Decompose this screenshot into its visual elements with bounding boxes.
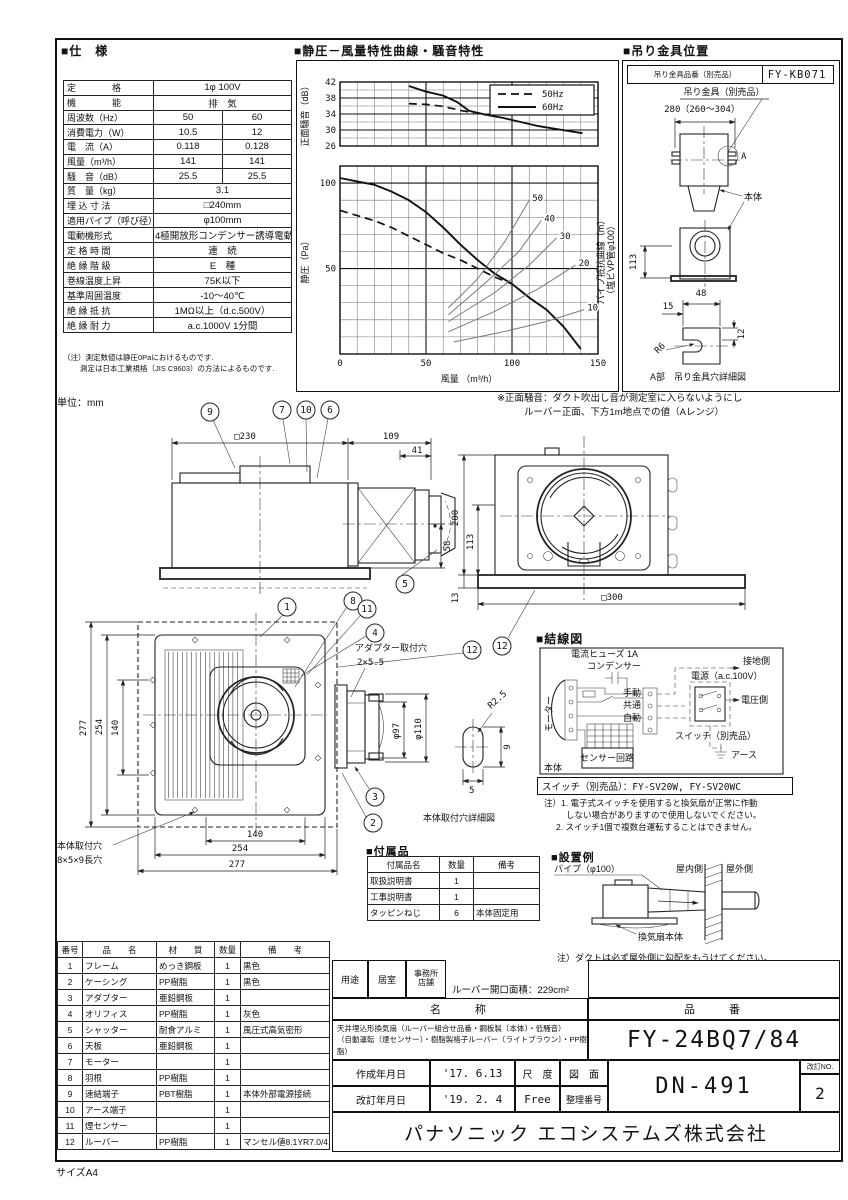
ground-side-label: 接地側 bbox=[743, 655, 770, 666]
balloon-5: 5 bbox=[396, 575, 414, 593]
svg-text:38: 38 bbox=[325, 94, 336, 104]
dim-41-group: 41 bbox=[400, 446, 431, 460]
dim-110: φ110 bbox=[414, 718, 424, 740]
spec-row: 機 能排 気 bbox=[64, 95, 292, 110]
usage-living: 居室 bbox=[368, 960, 406, 998]
model-header: 品 番 bbox=[588, 998, 840, 1020]
capacitor-label: コンデンサー bbox=[587, 660, 641, 671]
adapter-hole-label: アダプター取付穴 bbox=[355, 642, 427, 653]
balloon-11: 11 bbox=[358, 600, 376, 618]
svg-text:8: 8 bbox=[350, 596, 356, 607]
louver-assembly bbox=[138, 613, 337, 837]
table-row: 7モーター1 bbox=[58, 1054, 330, 1070]
table-row: 工事説明書1 bbox=[368, 889, 540, 905]
balloon-9: 9 bbox=[201, 403, 219, 421]
dim-113: 113 bbox=[466, 534, 476, 550]
adapter-hole-size: 2×5.5 bbox=[357, 658, 384, 668]
dim-5: 5 bbox=[469, 786, 474, 796]
spec-row: 定 格 時 間連 続 bbox=[64, 243, 292, 258]
spec-table-body: 定 格1φ 100V機 能排 気周波数（Hz）5060消費電力（W）10.512… bbox=[64, 81, 292, 333]
detail-a-label: A bbox=[741, 152, 747, 162]
bracket-caption: A部 吊り金具穴詳細図 bbox=[650, 371, 746, 382]
dim-r25: R2.5 bbox=[486, 689, 509, 711]
table-row: 10アース端子1 bbox=[58, 1102, 330, 1118]
pressure-y-axis-label: 静圧（Pa） bbox=[299, 236, 310, 283]
balloon-1: 1 bbox=[278, 598, 296, 616]
svg-text:50: 50 bbox=[421, 359, 432, 369]
svg-text:9: 9 bbox=[207, 407, 213, 418]
spec-row: 絶 縁 抵 抗1MΩ以上（d.c.500V） bbox=[64, 303, 292, 318]
spec-row: 埋 込 寸 法□240mm bbox=[64, 198, 292, 213]
created-label: 作成年月日 bbox=[332, 1060, 430, 1086]
side-view-drawing: 9 7 10 6 □230 109 41 bbox=[85, 398, 455, 613]
dim-254-bottom: 254 bbox=[232, 844, 248, 854]
pipe-curve-axis-label-1: パイプ抵抗曲線（m） bbox=[595, 216, 606, 305]
table-row: 2ケーシングPP樹脂1黒色 bbox=[58, 974, 330, 990]
spec-note-1: （注）測定数値は静圧0Paにおけるものです. bbox=[63, 352, 213, 363]
switch-label: スイッチ（別売品） bbox=[675, 730, 756, 741]
fuse-label: 電流ヒューズ 1A bbox=[571, 648, 638, 659]
spec-sheet-page: { "meta": {"sheet_size": "サイズA4", "unit"… bbox=[0, 0, 848, 1200]
product-name-line-1: 天井埋込形換気扇（ルーバー組合せ品番・鋼板製〔本体〕・低騒音） bbox=[337, 1023, 566, 1034]
pq-noise-chart: 正面騒音（dB） 静圧（Pa） 風量 （m³/h） パイプ抵抗曲線（m） （塩ビ… bbox=[296, 60, 617, 390]
svg-text:10: 10 bbox=[300, 405, 312, 416]
table-row: 12ルーバーPP樹脂1マンセル値8.1YR7.0/4.0 bbox=[58, 1134, 330, 1150]
spec-row: 絶 縁 階 級E 種 bbox=[64, 258, 292, 273]
svg-text:150: 150 bbox=[590, 359, 606, 369]
spec-note-2: 測定は日本工業規格（JIS C9603）の方法によるものです. bbox=[80, 363, 274, 374]
svg-text:34: 34 bbox=[325, 110, 336, 120]
bracket-label: 吊り金具（別売品） bbox=[683, 86, 764, 97]
accessories-table: 付属品名数量備考取扱説明書1工事説明書1タッピンねじ6本体固定用 bbox=[367, 856, 540, 921]
dim-12: 12 bbox=[737, 329, 747, 340]
dim-41: 41 bbox=[412, 446, 423, 456]
table-row: 3アダプター亜鉛鋼板1 bbox=[58, 990, 330, 1006]
svg-text:60Hz: 60Hz bbox=[542, 103, 564, 113]
noise-note-1: ※正面騒音：ダクト吹出し音が測定室に入らないようにし bbox=[497, 390, 742, 404]
product-name-cell: 天井埋込形換気扇（ルーバー組合せ品番・鋼板製〔本体〕・低騒音） （自動運転〔煙セ… bbox=[332, 1020, 588, 1060]
balloon-4: 4 bbox=[366, 624, 384, 642]
created-date: '17. 6.13 bbox=[430, 1060, 515, 1086]
table-row: 5シャッター耐食アルミ1風圧式高気密形 bbox=[58, 1022, 330, 1038]
manual-label: 手動 bbox=[623, 687, 641, 698]
left-dims: 277 254 140 bbox=[79, 622, 155, 827]
dim-r6: R6 bbox=[653, 341, 668, 356]
sensor-label: センサー回路 bbox=[580, 752, 634, 763]
grille-lines bbox=[169, 652, 238, 798]
x-axis-label: 風量 （m³/h） bbox=[441, 374, 498, 384]
wiring-note-2: しない場合がありますので使用しないでください。 bbox=[566, 809, 761, 821]
mount-hole-detail: R2.5 9 5 本体取付穴詳細図 bbox=[423, 689, 513, 823]
dim-97: φ97 bbox=[392, 723, 402, 739]
switch-contacts bbox=[699, 691, 721, 712]
dim-109: 109 bbox=[383, 432, 399, 442]
bracket-drawing: 吊り金具（別売品） 280（260～304） A 本体 113 48 15 bbox=[622, 82, 838, 388]
table-row: 6天板亜鉛鋼板1 bbox=[58, 1038, 330, 1054]
product-name-line-2: （自動運転〔煙センサー〕・樹脂製格子ルーバー〔ライトブラウン〕・PP樹脂） bbox=[337, 1034, 587, 1057]
dim-277-bottom: 277 bbox=[229, 860, 245, 870]
svg-text:1: 1 bbox=[284, 602, 290, 613]
screw-marks bbox=[150, 637, 321, 813]
fan-body-label: 換気扇本体 bbox=[638, 931, 683, 942]
wiring-body-label: 本体 bbox=[544, 762, 562, 773]
install-example-drawing: パイプ（φ100） 屋内側 屋外側 換気扇本体 bbox=[550, 860, 840, 952]
pipe-curve-axis-label-2: （塩ビVP管φ100） bbox=[605, 221, 616, 299]
outdoor-label: 屋外側 bbox=[726, 863, 753, 874]
noise-note-2: ルーバー正面、下方1m地点での値（Aレンジ） bbox=[524, 404, 724, 418]
svg-text:5: 5 bbox=[402, 579, 408, 590]
drawing-label-a: 図 面 bbox=[560, 1060, 608, 1086]
fan-body-back bbox=[478, 436, 745, 600]
spec-row: 定 格1φ 100V bbox=[64, 81, 292, 96]
dim-277-left: 277 bbox=[79, 720, 89, 736]
common-label: 共通 bbox=[623, 700, 641, 710]
name-header: 名 称 bbox=[332, 998, 588, 1020]
adapter-side-view: φ97 φ110 bbox=[335, 685, 429, 768]
voltage-side-label: 電圧側 bbox=[741, 694, 768, 705]
revision-label: 改訂NO. bbox=[800, 1060, 840, 1074]
table-row: 9速結端子PBT樹脂1本体外部電源接続 bbox=[58, 1086, 330, 1102]
spec-row: 基準周囲温度-10～40℃ bbox=[64, 288, 292, 303]
bottom-dims: 140 254 277 bbox=[138, 817, 337, 875]
earth-label: アース bbox=[731, 750, 757, 760]
spec-heading: ■仕 様 bbox=[61, 42, 108, 59]
drawing-number: DN-491 bbox=[608, 1060, 800, 1112]
table-row: タッピンねじ6本体固定用 bbox=[368, 905, 540, 921]
svg-text:30: 30 bbox=[560, 232, 571, 242]
table-row: 8羽根PP樹脂1 bbox=[58, 1070, 330, 1086]
dim-140-bottom: 140 bbox=[247, 830, 263, 840]
revised-label: 改訂年月日 bbox=[332, 1086, 430, 1112]
svg-text:4: 4 bbox=[372, 628, 378, 639]
table-row: 1フレームめっき鋼板1黒色 bbox=[58, 958, 330, 974]
chart-heading: ■静圧－風量特性曲線・騒音特性 bbox=[294, 42, 484, 59]
parts-table: 番号品 名材 質数量備 考1フレームめっき鋼板1黒色2ケーシングPP樹脂1黒色3… bbox=[57, 941, 330, 1150]
company-name: パナソニック エコシステムズ株式会社 bbox=[332, 1112, 840, 1152]
spec-row: 絶 縁 耐 力a.c.1000V 1分間 bbox=[64, 318, 292, 333]
spec-row: 電 流（A）0.1180.128 bbox=[64, 140, 292, 155]
balloon-12b: 12 bbox=[463, 641, 481, 659]
balloon-7: 7 bbox=[273, 401, 291, 419]
mount-hole-label-2: 8×5×9長穴 bbox=[57, 854, 102, 866]
dim-254-left: 254 bbox=[95, 719, 105, 735]
svg-text:11: 11 bbox=[361, 604, 373, 615]
dim-9: 9 bbox=[503, 744, 513, 749]
svg-text:6: 6 bbox=[327, 405, 333, 416]
switch-model-row: スイッチ（別売品）：FY-SV20W, FY-SV20WC bbox=[537, 777, 793, 795]
dim-300: □300 bbox=[601, 593, 623, 603]
model-number: FY-24BQ7/84 bbox=[588, 1020, 840, 1060]
balloon-3: 3 bbox=[366, 788, 384, 806]
drawing-label-b: 整理番号 bbox=[560, 1086, 608, 1112]
dim-48: 48 bbox=[696, 289, 707, 299]
spec-row: 質 量（kg）3.1 bbox=[64, 184, 292, 199]
balloon-6: 6 bbox=[321, 401, 339, 419]
svg-text:0: 0 bbox=[337, 359, 342, 369]
usage-label: 用途 bbox=[332, 960, 368, 998]
svg-text:100: 100 bbox=[504, 359, 520, 369]
earth-symbol bbox=[715, 744, 727, 758]
svg-text:100: 100 bbox=[320, 179, 336, 189]
spec-table: 定 格1φ 100V機 能排 気周波数（Hz）5060消費電力（W）10.512… bbox=[63, 80, 292, 333]
wiring-note-3: 2. スイッチ1個で複数台運転することはできません。 bbox=[556, 821, 757, 833]
bracket-hole-detail: 48 15 R6 12 A部 吊り金具穴詳細図 bbox=[650, 289, 747, 382]
spec-row: 適用パイプ（呼び径）φ100mm bbox=[64, 213, 292, 228]
body-label: 本体 bbox=[744, 191, 762, 202]
spec-row: 騒 音（dB）25.525.5 bbox=[64, 169, 292, 184]
install-fan-body bbox=[592, 880, 677, 928]
power-label: 電源（a.c.100V） bbox=[691, 671, 763, 681]
dim-113: 113 bbox=[629, 254, 639, 270]
sensor-coil bbox=[587, 724, 633, 748]
table-row: 11煙センサー1 bbox=[58, 1118, 330, 1134]
fan-body-side bbox=[160, 456, 370, 596]
svg-text:30: 30 bbox=[325, 126, 336, 136]
svg-text:50Hz: 50Hz bbox=[542, 90, 564, 100]
bracket-heading: ■吊り金具位置 bbox=[623, 42, 709, 59]
title-block-empty-cell bbox=[588, 960, 840, 998]
revision-number: 2 bbox=[800, 1074, 840, 1112]
mount-hole-label-1: 本体取付穴 bbox=[57, 840, 102, 851]
auto-label: 自動 bbox=[623, 712, 641, 723]
svg-text:10: 10 bbox=[587, 304, 598, 314]
svg-text:3: 3 bbox=[372, 792, 378, 803]
dim-140-left: 140 bbox=[111, 720, 121, 736]
spec-row: 風量（m³/h）141141 bbox=[64, 154, 292, 169]
svg-text:50: 50 bbox=[532, 194, 543, 204]
svg-text:42: 42 bbox=[325, 78, 336, 88]
table-row: 4オリフィスPP樹脂1灰色 bbox=[58, 1006, 330, 1022]
svg-text:2: 2 bbox=[370, 818, 376, 829]
wall bbox=[705, 864, 722, 944]
svg-text:20: 20 bbox=[579, 259, 590, 269]
duct-adapter-side bbox=[343, 483, 457, 566]
install-duct bbox=[648, 888, 759, 912]
hole-detail-caption: 本体取付穴詳細図 bbox=[423, 812, 495, 823]
title-block: 用途 居室 事務所 店舗 ルーバー開口面積：229cm² 名 称 品 番 天井埋… bbox=[332, 960, 840, 1152]
svg-text:26: 26 bbox=[325, 142, 336, 152]
indoor-label: 屋内側 bbox=[676, 863, 703, 874]
revised-date: '19. 2. 4 bbox=[430, 1086, 515, 1112]
noise-y-axis-label: 正面騒音（dB） bbox=[299, 81, 310, 146]
spec-row: 巻線温度上昇75K以下 bbox=[64, 273, 292, 288]
usage-office-shop: 事務所 店舗 bbox=[406, 960, 446, 998]
svg-text:40: 40 bbox=[544, 215, 555, 225]
svg-text:50: 50 bbox=[325, 265, 336, 275]
pipe-label: パイプ（φ100） bbox=[554, 864, 620, 874]
dim-230: □230 bbox=[234, 432, 256, 442]
dim-200: 200 bbox=[451, 510, 461, 526]
wiring-diagram: 電流ヒューズ 1A コンデンサー モーター 手動 共通 自動 接地側 電源（a.… bbox=[535, 644, 790, 778]
spec-row: 消費電力（W）10.512 bbox=[64, 125, 292, 140]
dim-15: 15 bbox=[663, 302, 674, 312]
balloon-2: 2 bbox=[364, 814, 382, 832]
louver-area-label: ルーバー開口面積：229cm² bbox=[452, 982, 569, 996]
svg-text:7: 7 bbox=[279, 405, 285, 416]
bracket-side-view: 本体 113 bbox=[629, 190, 762, 287]
spec-row: 周波数（Hz）5060 bbox=[64, 110, 292, 125]
balloon-10: 10 bbox=[297, 401, 315, 419]
scale-value: Free bbox=[515, 1086, 560, 1112]
dim-280: 280（260～304） bbox=[664, 104, 740, 115]
svg-text:12: 12 bbox=[466, 645, 477, 656]
spec-row: 電動機形式4極開放形コンデンサー誘導電動機 bbox=[64, 228, 292, 243]
wiring-note-1: 注）1. 電子式スイッチを使用すると換気扇が正常に作動 bbox=[544, 797, 757, 809]
table-row: 取扱説明書1 bbox=[368, 873, 540, 889]
sheet-size-label: サイズA4 bbox=[56, 1164, 98, 1179]
scale-label: 尺 度 bbox=[515, 1060, 560, 1086]
